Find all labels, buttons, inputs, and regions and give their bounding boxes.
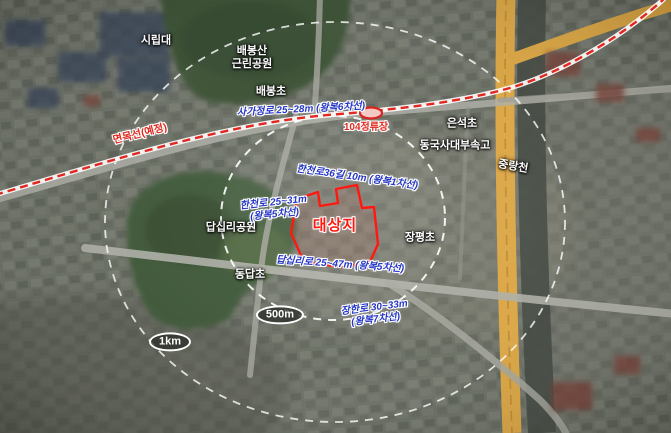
scale-badge-1km: 1km (149, 332, 191, 351)
satellite-imagery (0, 0, 671, 433)
location-map: 시립대 배봉산 근린공원 배봉초 은석초 동국사대부속고 중랑천 답십리공원 동… (0, 0, 671, 433)
station-marker (360, 108, 382, 119)
